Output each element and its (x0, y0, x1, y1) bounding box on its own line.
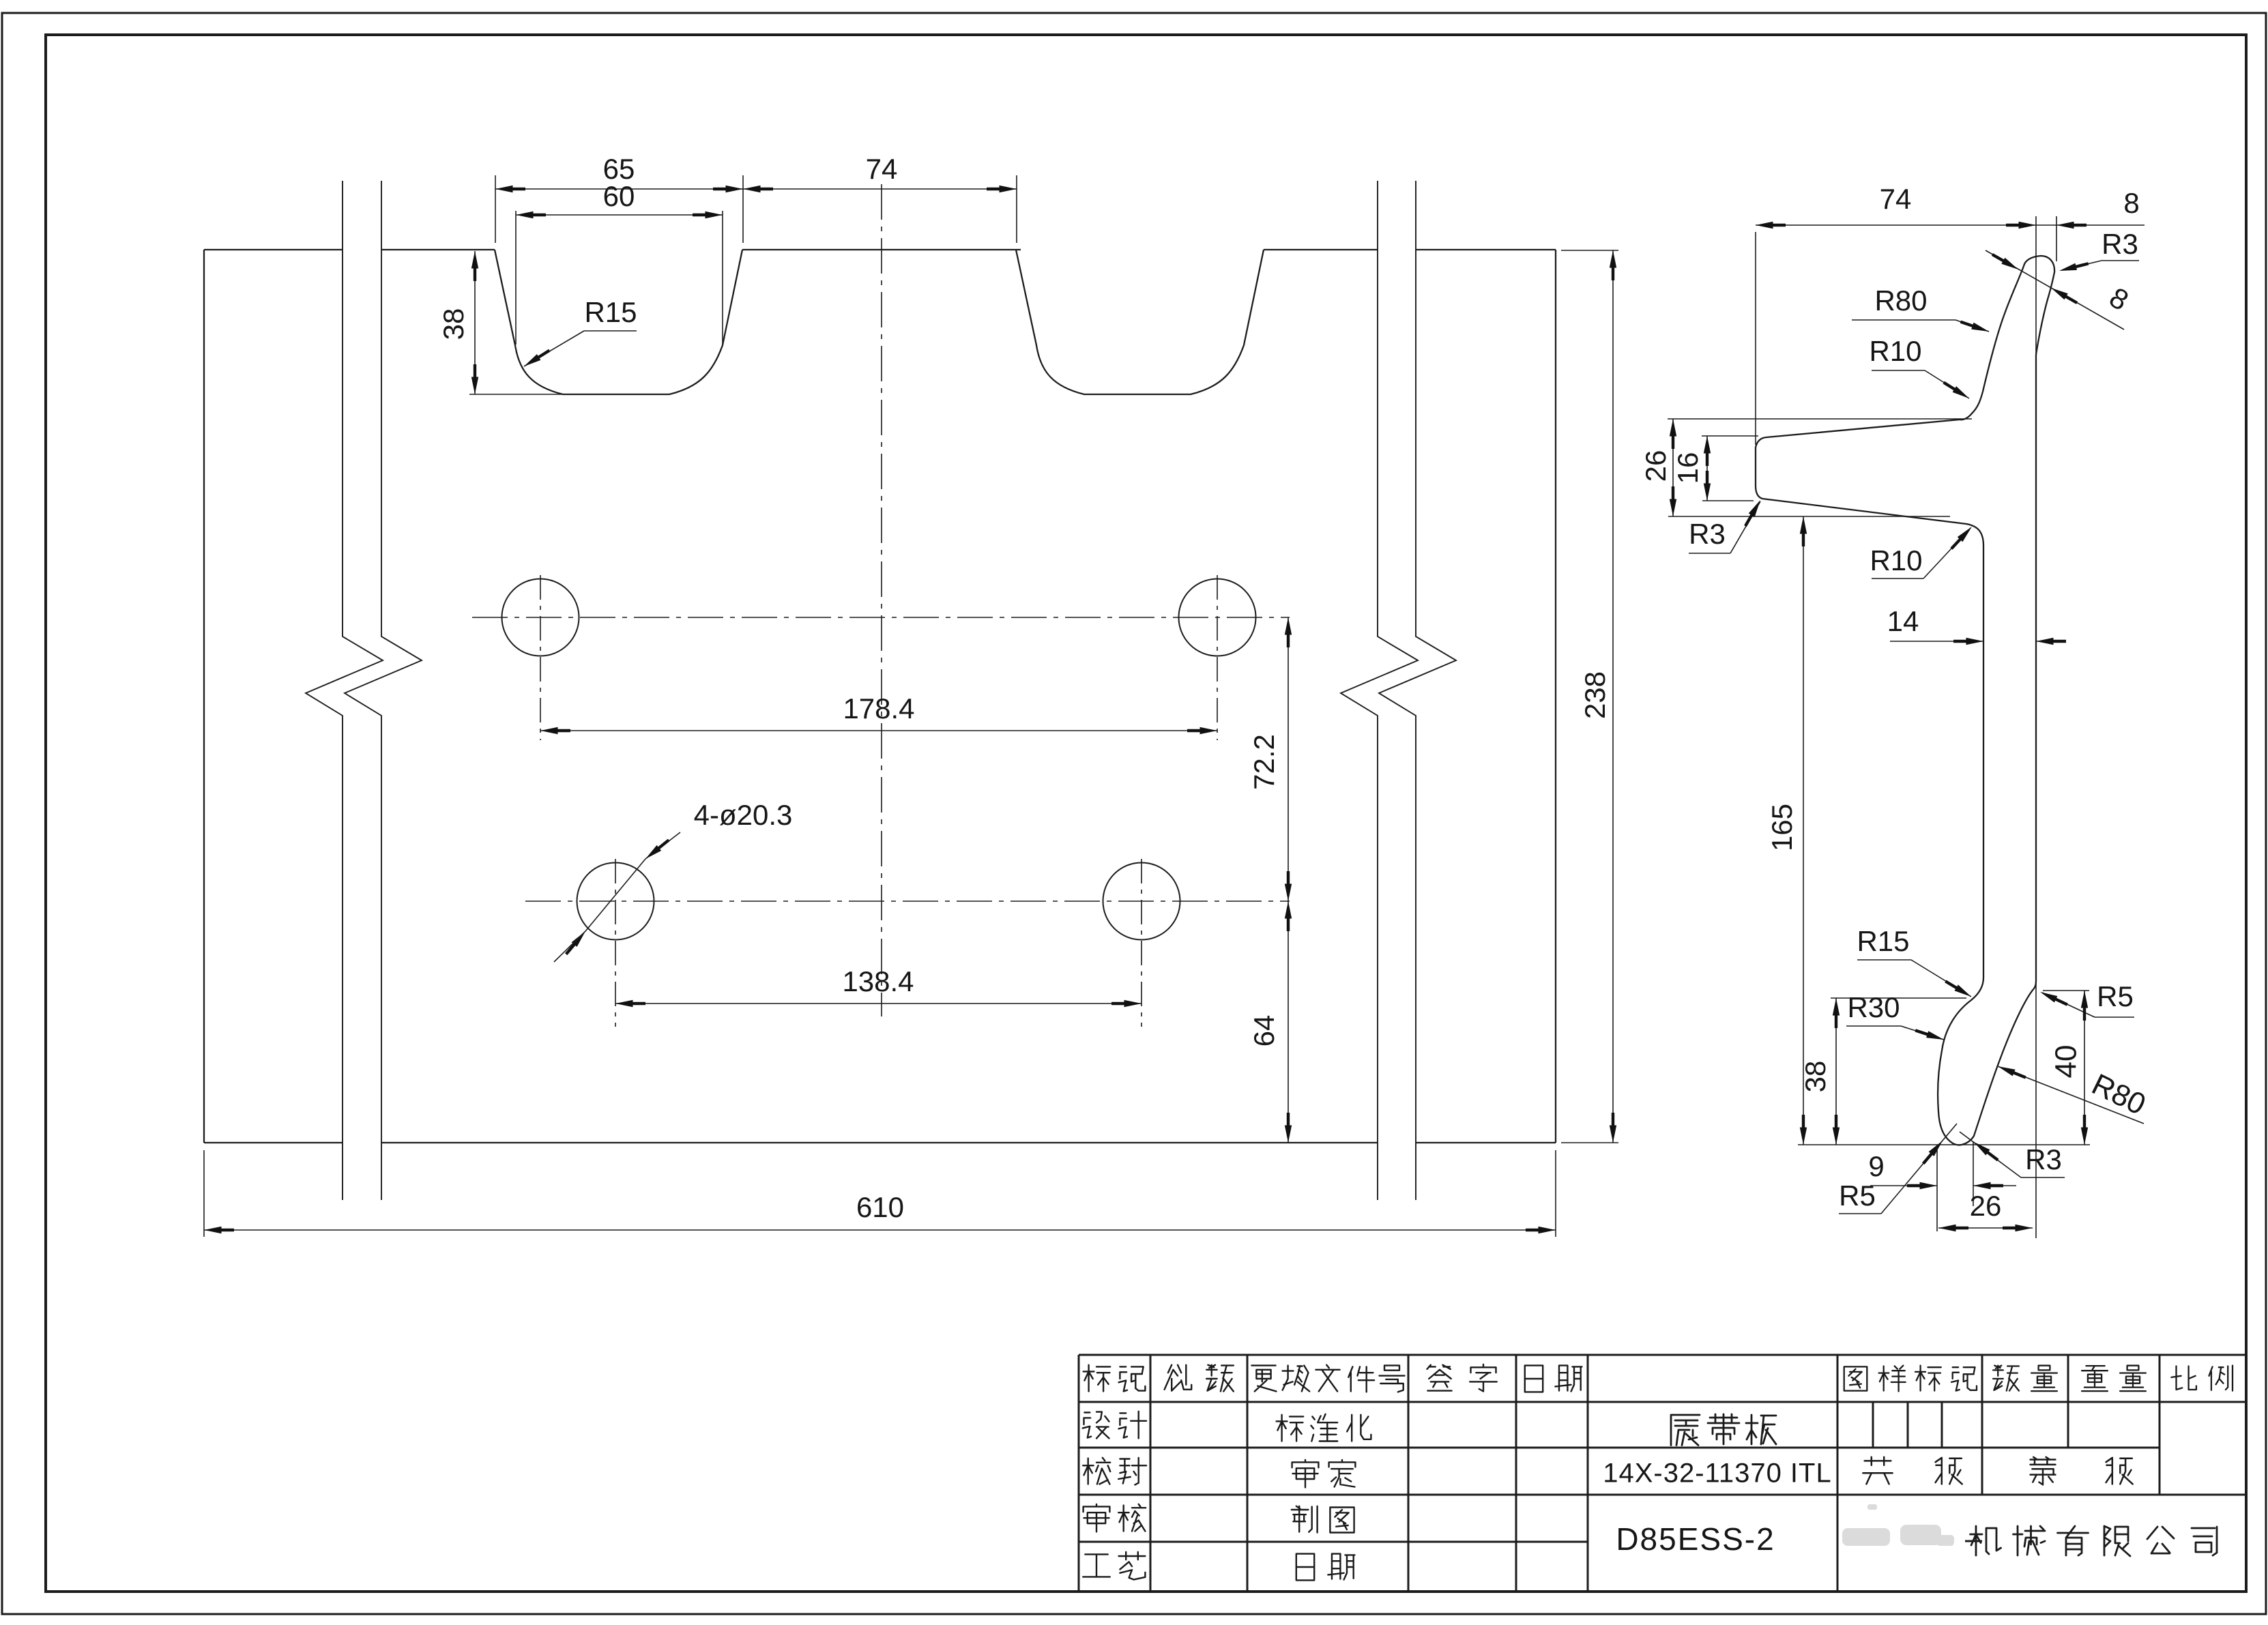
svg-text:165: 165 (1766, 804, 1798, 851)
svg-text:R80: R80 (1874, 284, 1927, 317)
svg-text:16: 16 (1672, 452, 1704, 484)
svg-text:R15: R15 (1857, 925, 1909, 957)
svg-text:138.4: 138.4 (842, 965, 914, 997)
svg-text:14: 14 (1887, 605, 1919, 637)
svg-text:38: 38 (1799, 1061, 1831, 1093)
svg-text:38: 38 (437, 308, 469, 340)
svg-text:26: 26 (1640, 450, 1672, 482)
svg-text:R30: R30 (1847, 991, 1900, 1023)
svg-text:8: 8 (2123, 187, 2139, 219)
svg-text:26: 26 (1970, 1190, 2002, 1222)
svg-text:40: 40 (2050, 1045, 2083, 1079)
svg-text:R15: R15 (584, 296, 637, 328)
svg-text:R10: R10 (1870, 544, 1922, 576)
svg-text:R10: R10 (1869, 335, 1921, 367)
svg-text:D85ESS-2: D85ESS-2 (1616, 1521, 1775, 1557)
svg-text:60: 60 (603, 180, 635, 212)
svg-text:4-ø20.3: 4-ø20.3 (694, 799, 793, 831)
svg-text:9: 9 (1868, 1150, 1884, 1182)
svg-text:610: 610 (856, 1191, 904, 1223)
svg-text:R5: R5 (2097, 980, 2134, 1012)
svg-text:72.2: 72.2 (1248, 734, 1280, 790)
svg-text:74: 74 (1880, 183, 1912, 215)
svg-text:R3: R3 (2025, 1143, 2062, 1175)
svg-text:14X-32-11370 ITL: 14X-32-11370 ITL (1603, 1459, 1831, 1489)
svg-text:238: 238 (1579, 671, 1611, 719)
svg-text:178.4: 178.4 (843, 692, 914, 724)
svg-text:64: 64 (1248, 1015, 1280, 1047)
svg-text:R3: R3 (2102, 228, 2138, 260)
svg-text:R5: R5 (1839, 1180, 1876, 1212)
svg-text:R3: R3 (1689, 518, 1726, 550)
svg-text:74: 74 (866, 153, 898, 185)
